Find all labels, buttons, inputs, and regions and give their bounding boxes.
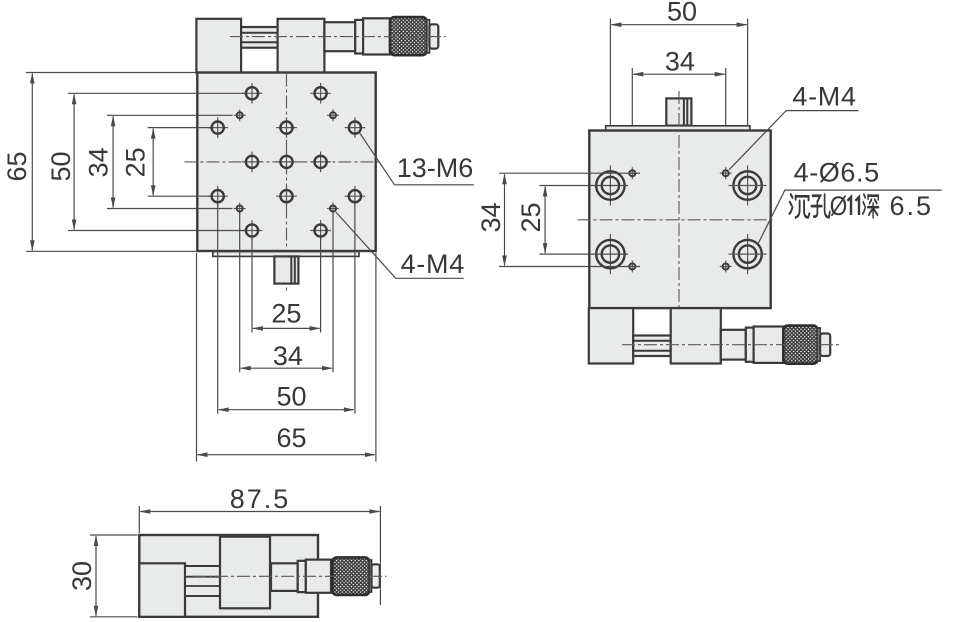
svg-text:50: 50	[667, 0, 697, 26]
svg-text:6.5: 6.5	[890, 191, 934, 221]
svg-text:34: 34	[273, 341, 303, 371]
svg-text:25: 25	[120, 147, 150, 177]
svg-text:4-Ø6.5: 4-Ø6.5	[794, 158, 880, 188]
svg-text:4-M4: 4-M4	[792, 82, 856, 112]
svg-text:50: 50	[46, 151, 76, 181]
svg-text:34: 34	[84, 147, 114, 177]
svg-text:13-M6: 13-M6	[397, 153, 474, 183]
svg-text:65: 65	[2, 151, 32, 181]
svg-text:25: 25	[516, 202, 546, 232]
svg-text:34: 34	[476, 202, 506, 232]
svg-text:Ø: Ø	[830, 191, 848, 221]
svg-text:87.5: 87.5	[230, 484, 291, 514]
svg-text:30: 30	[67, 561, 97, 591]
svg-text:25: 25	[271, 299, 301, 329]
svg-text:34: 34	[665, 47, 695, 77]
svg-text:65: 65	[276, 423, 306, 453]
svg-text:50: 50	[276, 381, 306, 411]
svg-text:4-M4: 4-M4	[401, 249, 465, 279]
